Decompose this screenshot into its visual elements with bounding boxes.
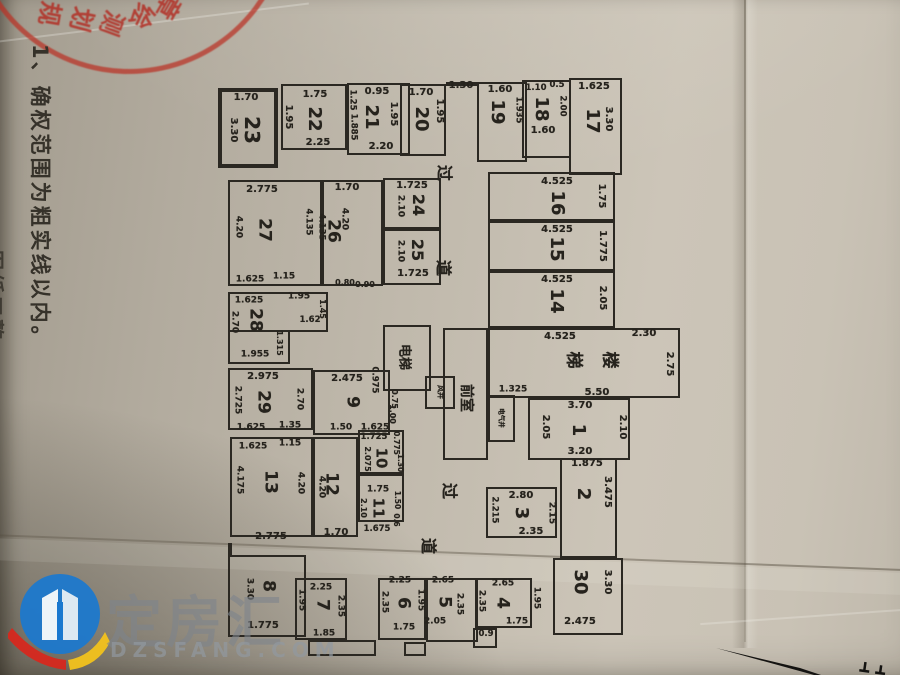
dimension-label: 2.35: [336, 595, 345, 617]
dimension-label: 1.30: [396, 454, 404, 473]
dimension-label: 1.625: [239, 443, 267, 452]
dimension-label: 4.135: [317, 214, 326, 241]
room-box: [404, 642, 426, 656]
dimension-label: 1.875: [571, 459, 603, 469]
dimension-label: 1.625: [236, 276, 264, 285]
dimension-label: 2.20: [369, 142, 394, 152]
dimension-label: 1.75: [596, 184, 606, 209]
dimension-label: 1.60: [531, 126, 556, 136]
room-number: 29: [255, 390, 272, 414]
area-label: 梯: [565, 352, 582, 369]
dimension-label: 1.625: [235, 297, 263, 306]
area-label: 前室: [459, 384, 473, 412]
dimension-label: 2.05: [540, 415, 550, 440]
dimension-label: 1.62: [300, 316, 321, 325]
dimension-label: 2.075: [363, 446, 371, 471]
room-number: 24: [410, 194, 426, 216]
dimension-label: 1.95: [297, 589, 306, 611]
dimension-label: 2.775: [246, 185, 278, 195]
dimension-label: 1.675: [364, 525, 391, 534]
room-number: 23: [242, 116, 262, 144]
dimension-label: 3.70: [568, 401, 593, 411]
dimension-label: 2.10: [396, 195, 405, 217]
room-number: 10: [374, 448, 389, 469]
dimension-label: 1.955: [241, 351, 269, 360]
dimension-label: 2.25: [310, 584, 332, 593]
dimension-label: 2.05: [424, 618, 446, 627]
dimension-label: 4.135: [304, 209, 313, 236]
dimension-label: 1.75: [506, 618, 528, 627]
dimension-label: 1.95: [416, 589, 425, 611]
area-label: 电气井: [498, 408, 505, 428]
dimension-label: 0.775: [392, 431, 400, 455]
watermark-domain: DZSFANG.COM: [110, 638, 341, 662]
room-number: 25: [409, 239, 425, 261]
dimension-label: 2.05: [597, 286, 607, 311]
dimension-label: 1.95: [283, 105, 293, 130]
dimension-label: 2.00: [558, 96, 567, 117]
dimension-label: 1.725: [397, 269, 429, 279]
dimension-label: 3.30: [602, 570, 612, 595]
logo-tower-right: [62, 589, 78, 640]
dimension-label: 1.15: [279, 440, 301, 449]
area-label: 过: [436, 165, 452, 181]
dimension-label: 1.00: [388, 404, 396, 424]
dimension-label: 1.70: [409, 88, 434, 98]
dimension-label: 2.65: [432, 577, 454, 586]
dimension-label: 4.525: [544, 332, 576, 342]
room-number: 3: [512, 507, 530, 520]
room-number: 26: [325, 219, 342, 243]
dimension-label: 2.10: [359, 498, 367, 518]
dimension-label: 1.70: [335, 183, 360, 193]
dimension-label: 0.80: [335, 279, 355, 287]
dimension-label: 1.35: [279, 422, 301, 431]
dimension-label: 1.70: [234, 93, 259, 103]
dimension-label: 1.95: [388, 102, 398, 127]
room-number: 11: [371, 498, 386, 519]
area-label: 楼: [601, 352, 618, 369]
area-label: 过: [441, 483, 457, 499]
dimension-label: 2.80: [509, 491, 534, 501]
dimension-label: 1.725: [361, 433, 388, 442]
area-label: 道: [420, 538, 436, 554]
dimension-label: 1.775: [597, 230, 607, 262]
dimension-label: 4.525: [541, 177, 573, 187]
dimension-label: 1.95: [288, 293, 310, 302]
room-number: 27: [256, 218, 273, 242]
dimension-label: 1.60: [488, 85, 513, 95]
dimension-label: 2.70: [295, 388, 304, 410]
room-number: 13: [262, 470, 279, 494]
dimension-label: 4.20: [234, 216, 243, 238]
dimension-label: 4.20: [296, 472, 305, 494]
room-number: 9: [344, 396, 361, 408]
dimension-label: 1.95: [434, 99, 444, 124]
area-label: 道: [435, 260, 451, 276]
dimension-label: 1.15: [273, 273, 295, 282]
dimension-label: 1.885: [349, 114, 358, 141]
floor-plan: 1.70233.301.751.95222.250.951.251.885211…: [0, 0, 900, 675]
area-label: 风井: [437, 385, 444, 399]
dimension-label: 3.20: [568, 447, 593, 457]
dimension-label: 0.975: [370, 367, 379, 394]
room-box: [228, 543, 232, 555]
dimension-label: 1.325: [499, 386, 527, 395]
dimension-label: 1.30: [449, 81, 474, 91]
dimension-label: 2.15: [547, 502, 556, 524]
room-number: 19: [488, 99, 506, 124]
dimension-label: 0.9: [478, 630, 493, 639]
dimension-label: 1.70: [324, 528, 349, 538]
room-number: 1: [569, 424, 587, 437]
area-label: 电梯: [398, 344, 411, 370]
dimension-label: 3.30: [603, 107, 613, 132]
dimension-label: 2.35: [455, 593, 464, 615]
dimension-label: 2.65: [492, 580, 514, 589]
logo-tower-gap: [57, 602, 63, 640]
dimension-label: 0.5: [549, 81, 564, 90]
dimension-label: 1.10: [526, 84, 547, 93]
dimension-label: 1.75: [367, 486, 389, 495]
room-number: 28: [247, 308, 264, 332]
dimension-label: 2.30: [632, 329, 657, 339]
dimension-label: 2.775: [255, 532, 287, 542]
dimension-label: 0.6: [392, 513, 400, 526]
dimension-label: 1.625: [237, 424, 265, 433]
dimension-label: 1.725: [396, 181, 428, 191]
dimension-label: 1.75: [393, 624, 415, 633]
dimension-label: 2.35: [380, 591, 389, 613]
dimension-label: 3.475: [602, 476, 612, 508]
dimension-label: 4.525: [541, 275, 573, 285]
dimension-label: 1.50: [330, 424, 352, 433]
room-number: 21: [362, 104, 380, 129]
room-number: 6: [395, 597, 412, 609]
dimension-label: 2.10: [617, 415, 627, 440]
dimension-label: 2.725: [233, 386, 242, 414]
dimension-label: 1.50: [393, 491, 401, 510]
dimension-label: 1.935: [514, 97, 523, 124]
room-number: 30: [571, 569, 589, 594]
room-number: 22: [305, 106, 323, 131]
dimension-label: 5.50: [585, 388, 610, 398]
room-number: 15: [547, 236, 565, 261]
room-box: [426, 578, 478, 642]
dimension-label: 2.975: [247, 372, 279, 382]
dimension-label: 3.30: [228, 118, 238, 143]
room-number: 18: [532, 96, 550, 121]
dimension-label: 4.175: [235, 466, 244, 494]
dimension-label: 4.20: [317, 476, 326, 498]
dimension-label: 2.475: [564, 617, 596, 627]
room-number: 5: [436, 596, 453, 608]
dimension-label: 4.525: [541, 225, 573, 235]
dimension-label: 1.95: [532, 587, 541, 609]
dimension-label: 2.25: [306, 138, 331, 148]
room-number: 2: [574, 488, 592, 501]
dimension-label: 0.95: [365, 87, 390, 97]
dimension-label: 2.10: [396, 240, 405, 262]
room-number: 20: [412, 106, 430, 131]
dimension-label: 2.475: [331, 374, 363, 384]
dimension-label: 2.75: [664, 352, 674, 377]
dimension-label: 1.625: [578, 82, 610, 92]
room-number: 7: [314, 599, 331, 611]
dimension-label: 2.35: [477, 590, 486, 612]
dimension-label: 0.90: [355, 281, 375, 289]
watermark-logo: [8, 568, 112, 675]
dimension-label: 2.215: [490, 497, 499, 524]
dimension-label: 1.75: [303, 90, 328, 100]
dimension-label: 2.35: [519, 527, 544, 537]
floorplan-photo: 规划测绘章 1、确权范围为粗实线以内。 图纸工整 1.70233.301.751…: [0, 0, 900, 675]
dimension-label: 1.315: [275, 330, 283, 355]
logo-tower-left: [42, 589, 58, 640]
room-number: 16: [548, 190, 566, 215]
dimension-label: 2.25: [389, 577, 411, 586]
room-number: 17: [583, 108, 601, 133]
dimension-label: 2.70: [230, 311, 239, 333]
room-number: 14: [547, 288, 565, 313]
dimension-label: 1.25: [348, 90, 357, 111]
room-number: 4: [494, 597, 511, 609]
